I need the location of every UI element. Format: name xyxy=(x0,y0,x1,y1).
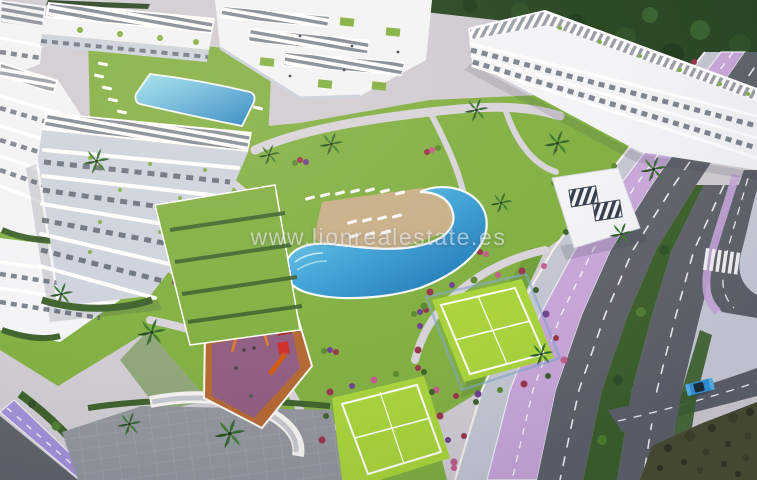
aerial-render-scene: www.lionrealestate.es xyxy=(0,0,757,480)
light-overlay xyxy=(0,0,757,480)
scene-canvas xyxy=(0,0,757,480)
